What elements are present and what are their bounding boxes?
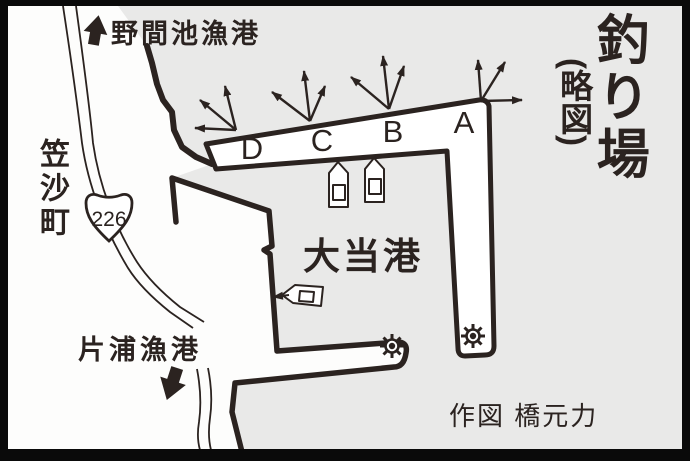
- fishing-map: D C B A: [0, 0, 690, 461]
- harbor-light-icon: [461, 324, 485, 348]
- frame-border-left: [0, 0, 8, 461]
- frame-border-top: [0, 0, 690, 6]
- harbor-light-icon: [380, 334, 404, 358]
- boat-icon: [329, 162, 348, 207]
- map-title-main: 釣り場: [591, 12, 647, 183]
- route-number: 226: [91, 208, 126, 231]
- label-kataura-port: 片浦漁港: [78, 328, 202, 367]
- spot-label-b: B: [383, 114, 404, 149]
- frame-border-right: [682, 0, 690, 461]
- spot-label-c: C: [311, 123, 333, 158]
- up-arrow-icon: [82, 13, 111, 47]
- spot-label-a: A: [454, 105, 475, 140]
- label-kasasa-town: 笠沙町: [29, 138, 73, 240]
- map-title-sub: (略図): [556, 20, 591, 183]
- down-arrow-icon: [154, 364, 190, 404]
- label-oatari-port: 大当港: [303, 226, 423, 280]
- label-noma-ike-port: 野間池漁港: [111, 12, 261, 51]
- map-title: 釣り場 (略図): [556, 12, 646, 183]
- map-credit: 作図 橋元力: [449, 396, 598, 433]
- frame-border-bottom: [0, 449, 690, 461]
- route-badge: 226: [86, 194, 132, 241]
- spot-label-d: D: [241, 131, 263, 166]
- boat-icon: [365, 158, 384, 202]
